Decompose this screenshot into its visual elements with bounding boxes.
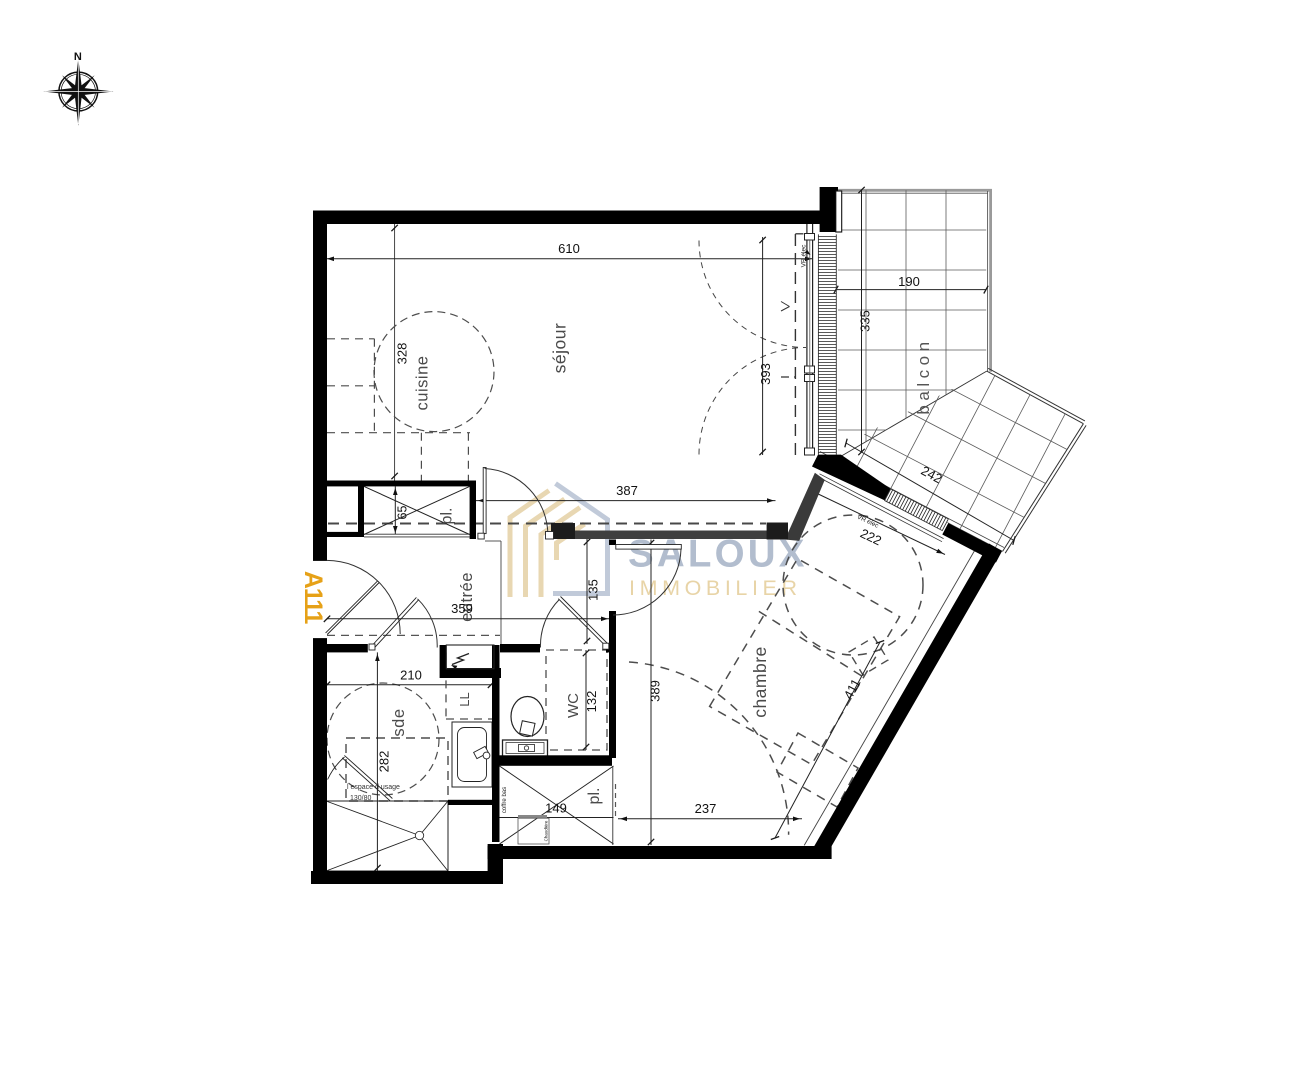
- svg-text:séjour: séjour: [550, 323, 570, 374]
- svg-text:coffre bas: coffre bas: [502, 787, 508, 813]
- svg-text:cuisine: cuisine: [414, 356, 432, 411]
- svg-text:l espace d usage: l espace d usage: [347, 784, 400, 791]
- svg-text:328: 328: [395, 343, 410, 365]
- svg-text:WC: WC: [565, 693, 582, 718]
- svg-text:210: 210: [400, 668, 422, 683]
- svg-text:N: N: [74, 51, 82, 63]
- svg-text:132: 132: [584, 691, 599, 713]
- svg-text:387: 387: [616, 483, 638, 498]
- svg-text:389: 389: [648, 680, 663, 702]
- svg-text:149: 149: [545, 801, 567, 816]
- svg-text:balcon: balcon: [914, 337, 933, 414]
- svg-text:Chaudière: Chaudière: [544, 820, 549, 841]
- svg-text:A111: A111: [299, 571, 327, 625]
- svg-text:sde: sde: [390, 708, 408, 736]
- svg-text:335: 335: [858, 310, 873, 332]
- svg-text:190: 190: [898, 274, 920, 289]
- svg-text:VR élec: VR élec: [801, 244, 808, 268]
- svg-text:282: 282: [377, 751, 392, 773]
- svg-text:pl.: pl.: [586, 788, 603, 805]
- svg-text:LL: LL: [457, 692, 472, 706]
- svg-text:chambre: chambre: [750, 646, 770, 718]
- svg-text:393: 393: [758, 363, 773, 385]
- svg-text:pl.: pl.: [439, 508, 456, 525]
- svg-text:135: 135: [586, 579, 601, 601]
- svg-text:237: 237: [695, 801, 717, 816]
- svg-text:359: 359: [451, 601, 473, 616]
- svg-text:610: 610: [558, 241, 580, 256]
